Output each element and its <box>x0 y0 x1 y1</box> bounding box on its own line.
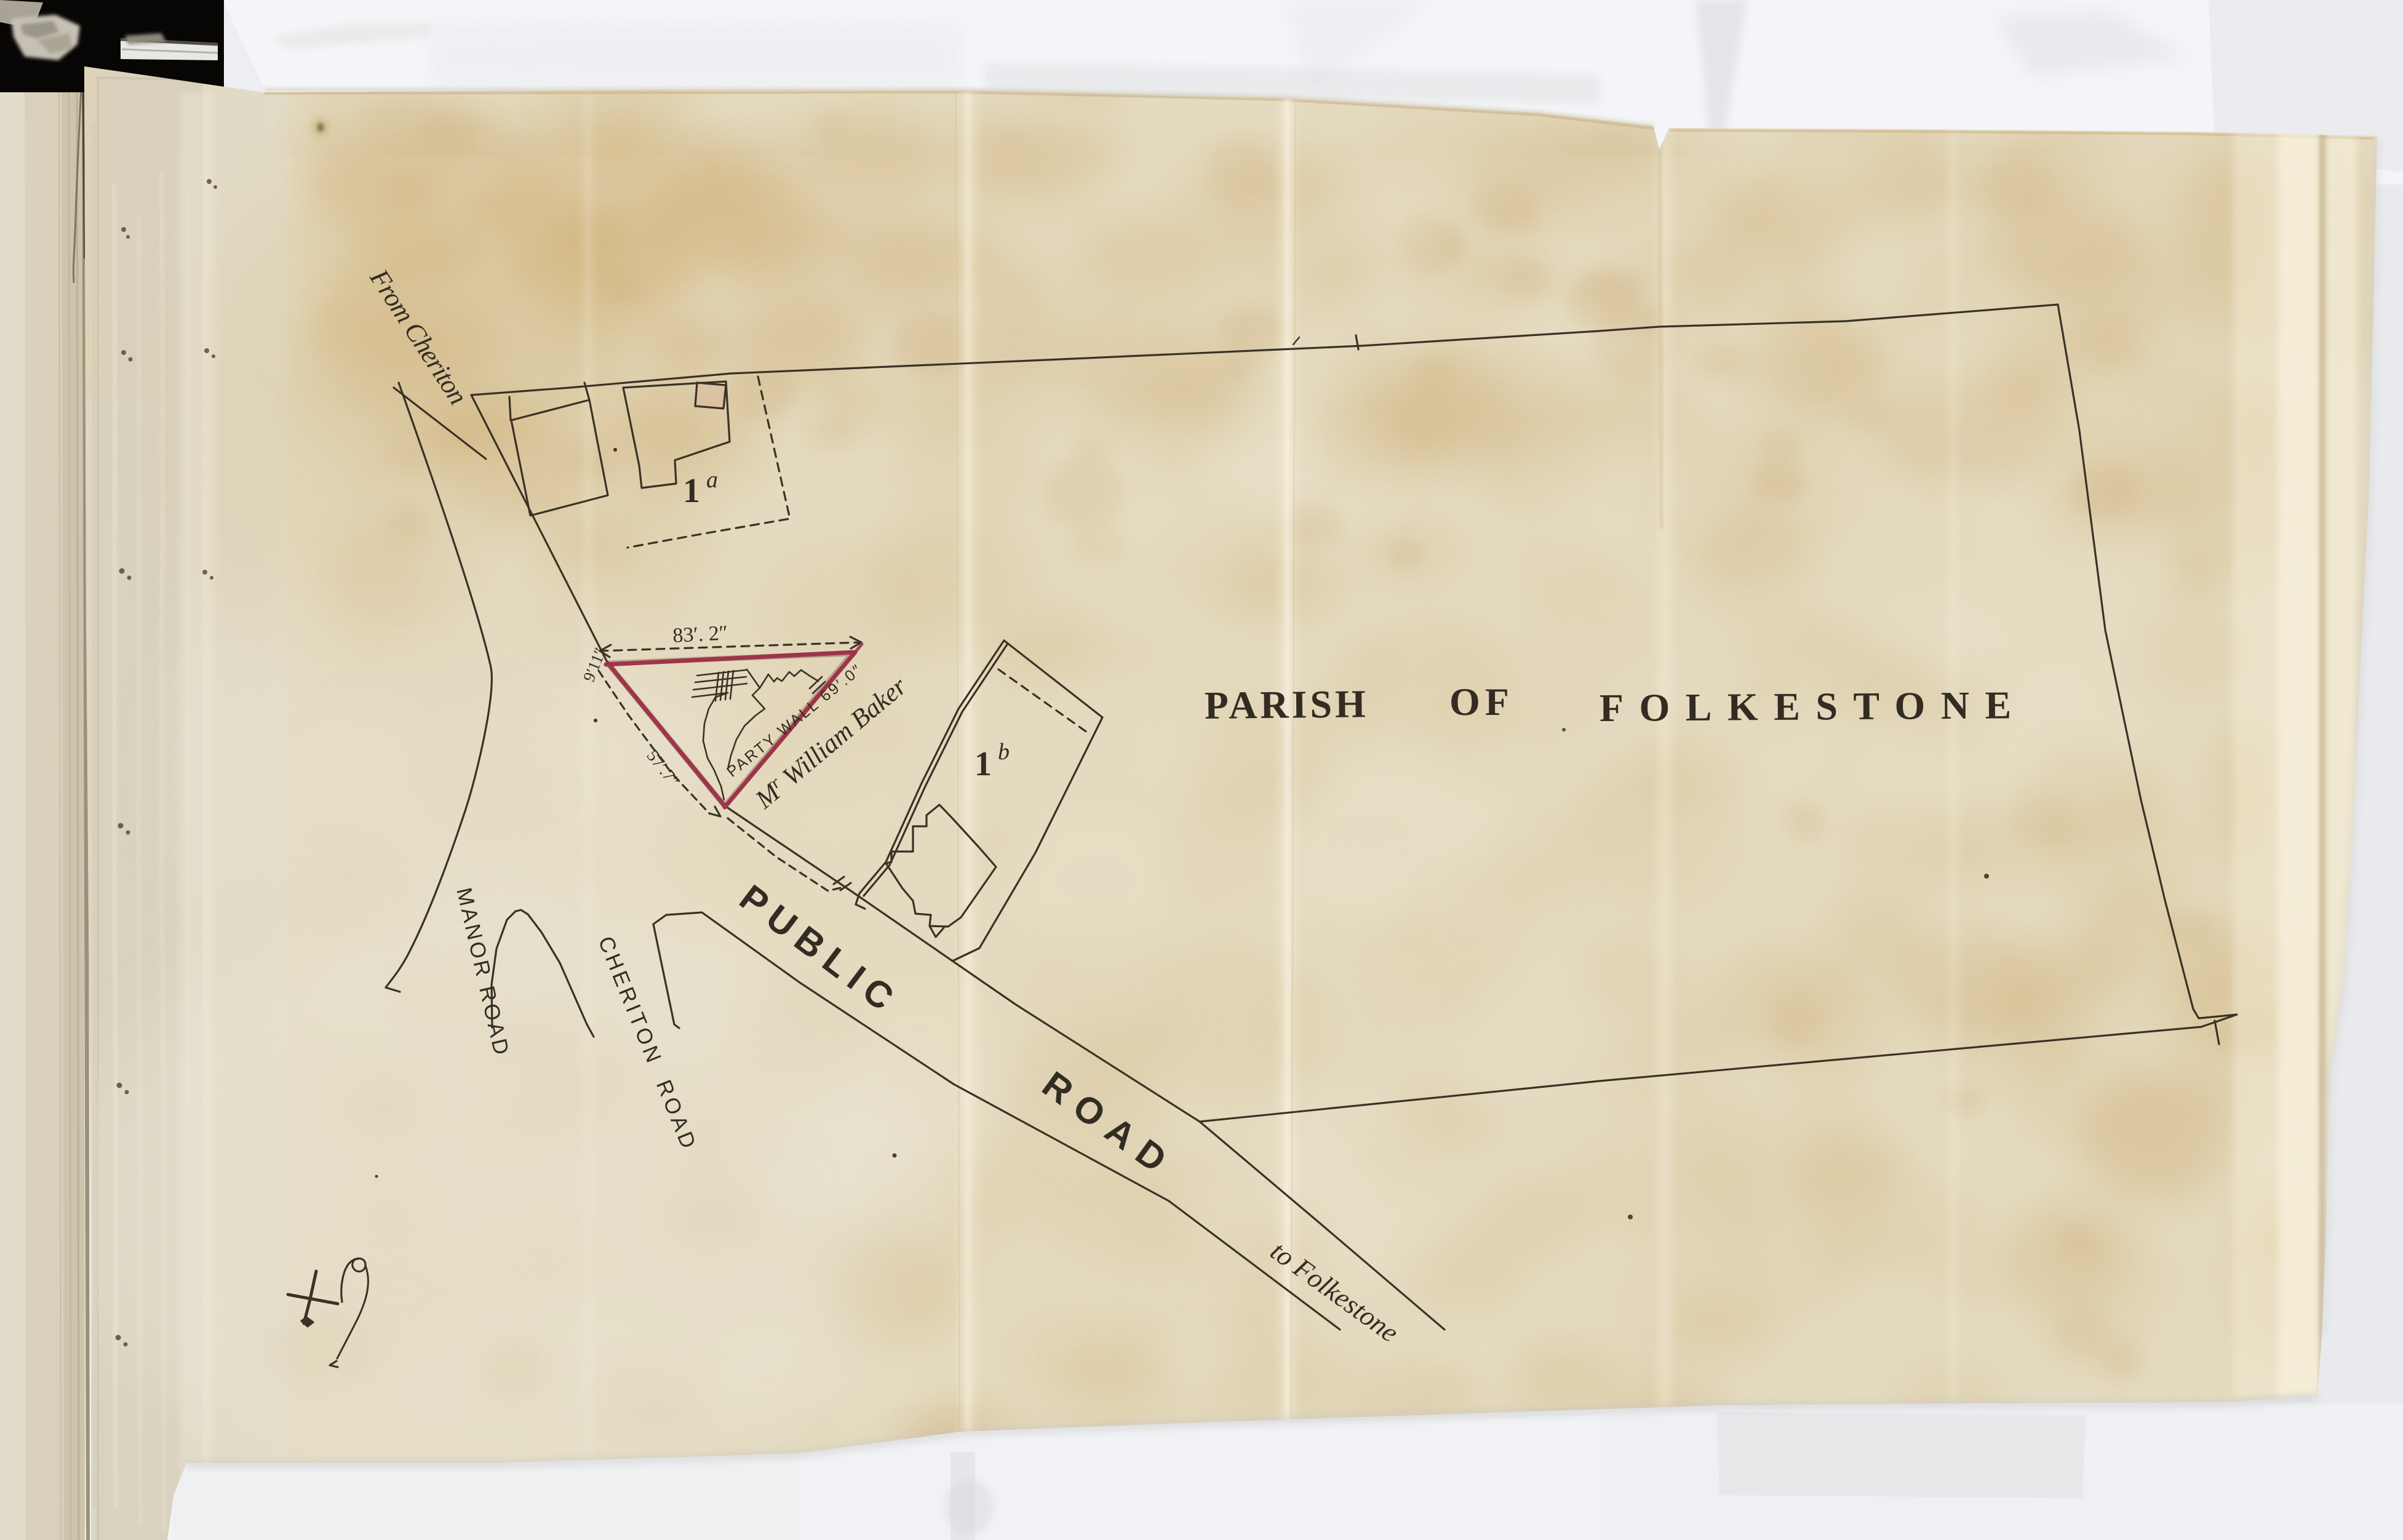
svg-text:FOLKESTONE: FOLKESTONE <box>1600 683 2027 730</box>
svg-text:83′. 2″: 83′. 2″ <box>672 621 728 647</box>
svg-text:OF: OF <box>1449 680 1514 724</box>
svg-text:1: 1 <box>683 472 700 510</box>
svg-text:PARISH: PARISH <box>1204 682 1369 727</box>
svg-text:a: a <box>706 467 718 493</box>
svg-text:1: 1 <box>974 745 992 783</box>
svg-text:b: b <box>998 739 1010 765</box>
